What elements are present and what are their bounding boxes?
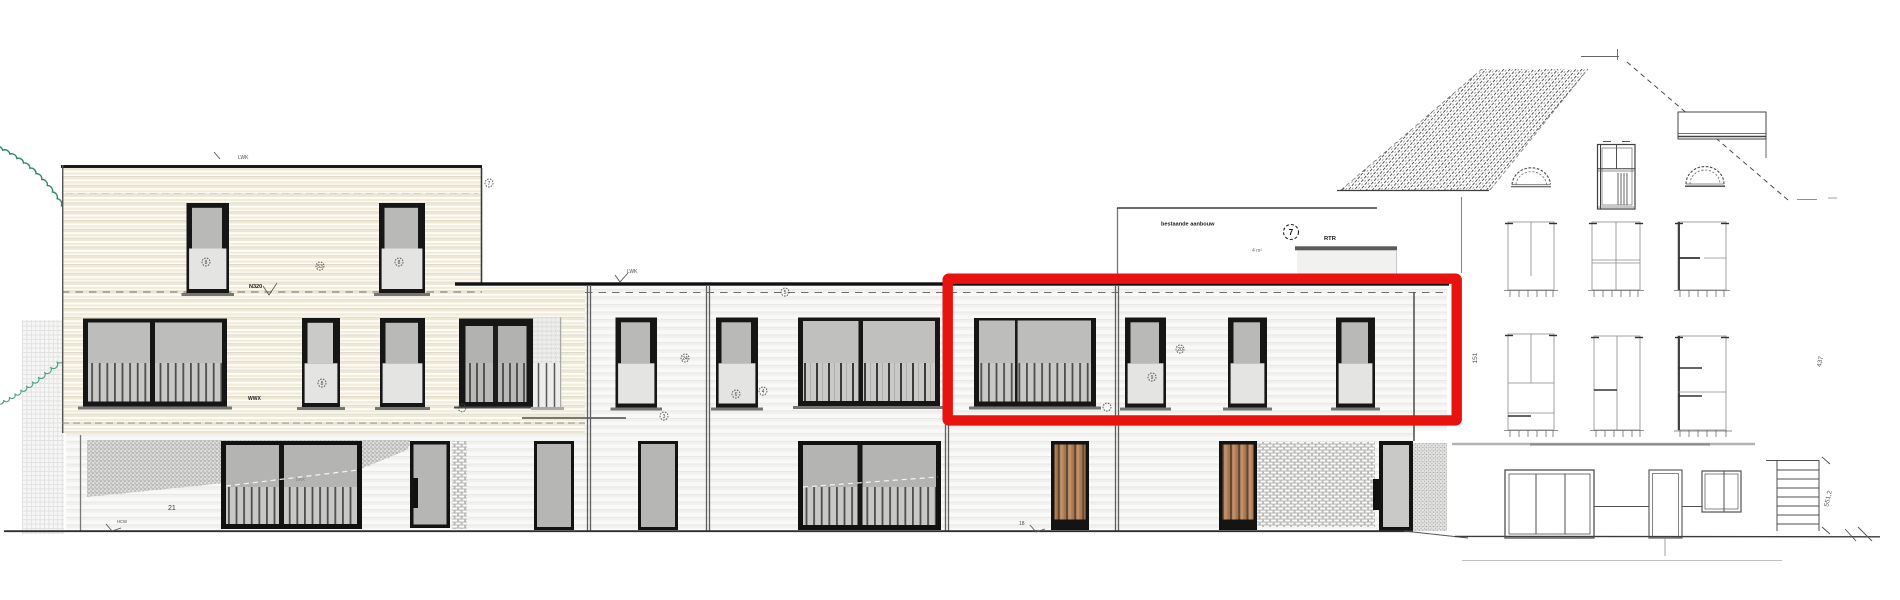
svg-text:LWK: LWK [627, 269, 638, 275]
svg-text:8: 8 [321, 381, 324, 387]
svg-text:RTR: RTR [1324, 236, 1337, 242]
svg-text:18: 18 [1019, 521, 1025, 527]
svg-text:WWX: WWX [248, 396, 261, 402]
svg-text:4 m²: 4 m² [1252, 248, 1262, 254]
svg-text:bestaande aanbouw: bestaande aanbouw [1161, 222, 1215, 228]
svg-text:53: 53 [317, 264, 323, 270]
svg-text:24: 24 [682, 356, 688, 362]
svg-text:8: 8 [205, 260, 208, 266]
svg-text:6: 6 [735, 392, 738, 398]
svg-text:7: 7 [1289, 228, 1294, 237]
svg-text:151: 151 [1472, 352, 1479, 363]
svg-text:7: 7 [488, 181, 491, 187]
svg-text:bwk: bwk [296, 477, 305, 483]
svg-text:551,2: 551,2 [1823, 490, 1833, 508]
svg-text:4: 4 [762, 389, 765, 395]
svg-text:3: 3 [663, 414, 666, 420]
svg-text:8: 8 [398, 260, 401, 266]
svg-text:N320: N320 [249, 284, 262, 290]
svg-text:20: 20 [1177, 347, 1183, 353]
svg-text:HCW: HCW [117, 519, 127, 524]
svg-text:5: 5 [784, 290, 787, 296]
svg-text:21: 21 [168, 505, 176, 512]
svg-text:9: 9 [1151, 375, 1154, 381]
svg-text:LWK: LWK [238, 155, 249, 161]
svg-text:437: 437 [1816, 355, 1825, 367]
